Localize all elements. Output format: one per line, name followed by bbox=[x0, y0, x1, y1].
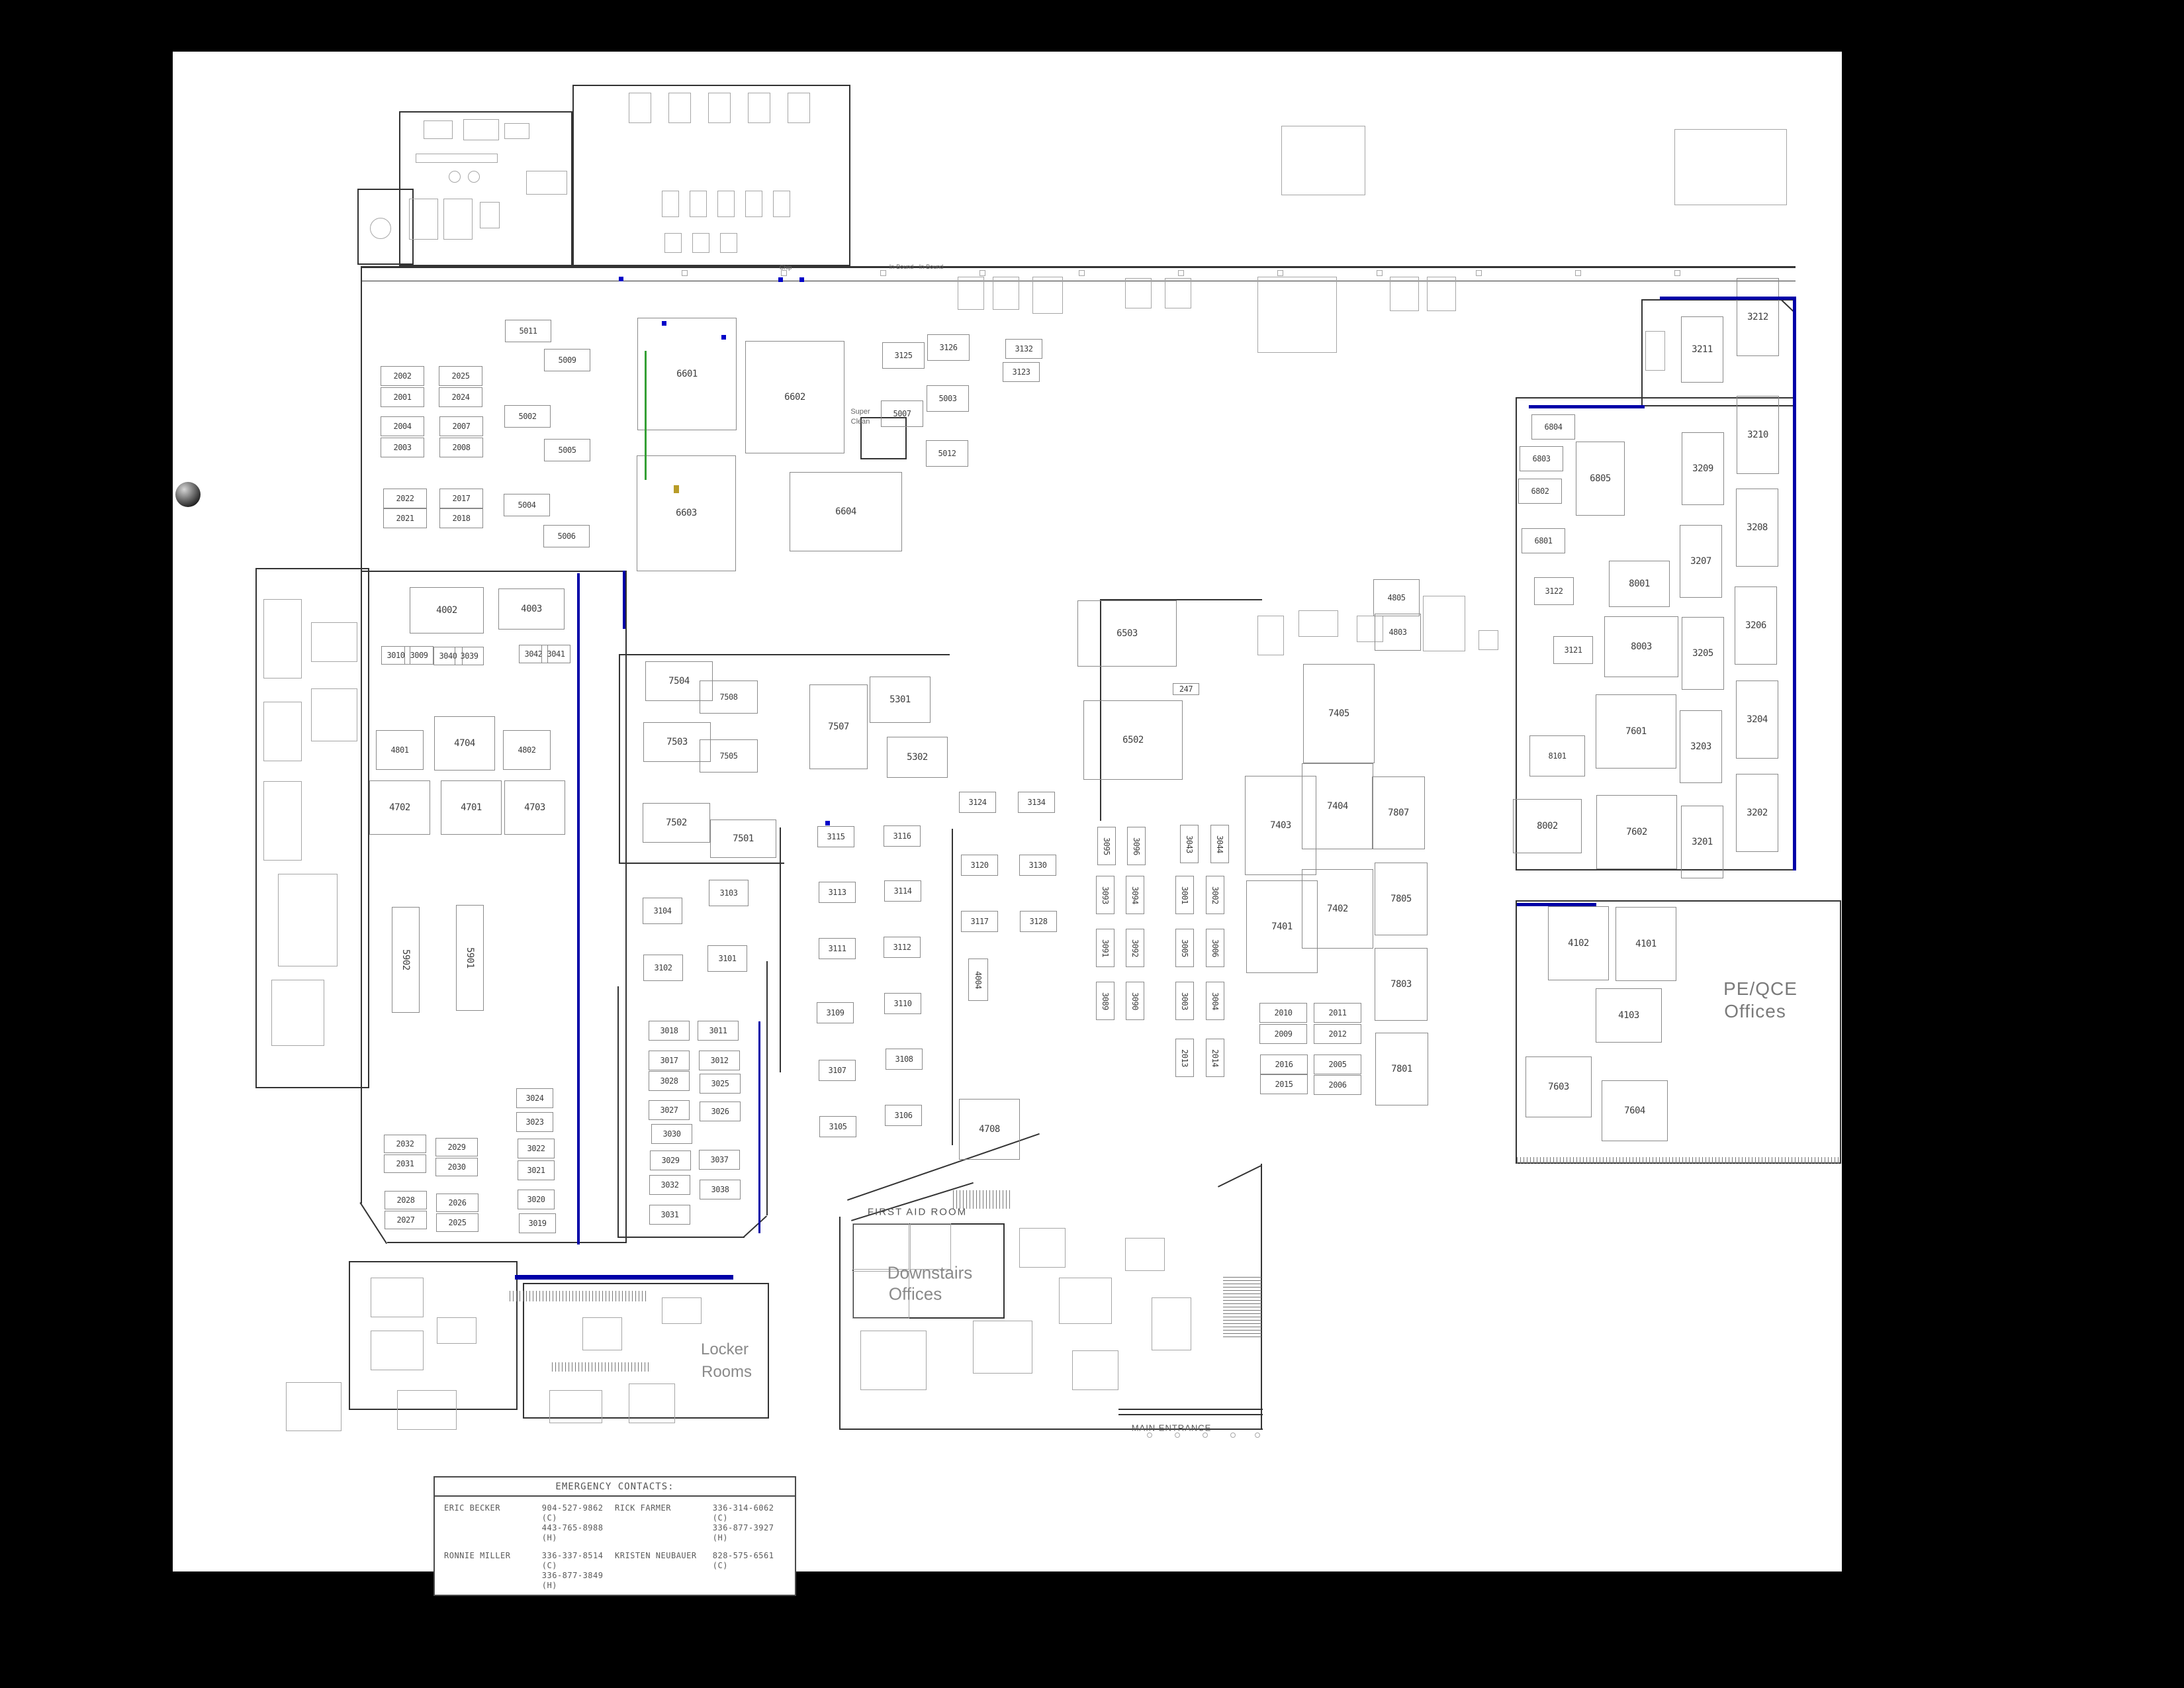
furniture-rect bbox=[443, 199, 473, 240]
room-label-6603: 6603 bbox=[676, 508, 697, 518]
wall-line bbox=[361, 266, 1796, 268]
room-4003: 4003 bbox=[498, 588, 565, 630]
room-5009: 5009 bbox=[544, 349, 590, 371]
room-label-3113: 3113 bbox=[829, 888, 846, 897]
contact-entry: ERIC BECKER904-527-9862 (C)443-765-8988 … bbox=[444, 1503, 615, 1543]
area-label: MAIN ENTRANCE bbox=[1132, 1423, 1212, 1433]
stairs-hatch bbox=[510, 1291, 649, 1301]
wall-line bbox=[361, 571, 627, 572]
blue-accent-line bbox=[1793, 297, 1796, 870]
furniture-rect bbox=[1257, 616, 1284, 655]
room-3009: 3009 bbox=[404, 646, 433, 665]
furniture-rect bbox=[1281, 126, 1365, 195]
room-3107: 3107 bbox=[819, 1060, 856, 1081]
room-4801: 4801 bbox=[376, 730, 424, 770]
room-3106: 3106 bbox=[885, 1105, 922, 1126]
room-label-3116: 3116 bbox=[893, 831, 911, 841]
furniture-circle bbox=[370, 218, 391, 239]
room-4002: 4002 bbox=[410, 587, 484, 633]
room-label-3009: 3009 bbox=[410, 651, 428, 660]
room-label-7603: 7603 bbox=[1548, 1082, 1569, 1092]
room-2006: 2006 bbox=[1314, 1075, 1361, 1095]
room-label-4004: 4004 bbox=[974, 971, 983, 989]
furniture-rect bbox=[549, 1390, 602, 1423]
room-3090: 3090 bbox=[1126, 982, 1144, 1020]
room-5005: 5005 bbox=[544, 439, 590, 461]
room-3031: 3031 bbox=[649, 1205, 690, 1225]
room-7807: 7807 bbox=[1372, 776, 1425, 849]
room-3210: 3210 bbox=[1737, 396, 1779, 474]
room-3017: 3017 bbox=[649, 1051, 690, 1070]
blue-dot bbox=[778, 277, 783, 282]
contact-name: RICK FARMER bbox=[615, 1503, 704, 1543]
room-label-2001: 2001 bbox=[394, 393, 412, 402]
room-5901: 5901 bbox=[456, 905, 484, 1011]
floorplan-screenshot: 2002200120042003202220212025202420072008… bbox=[0, 0, 2184, 1688]
yellow-accent bbox=[674, 485, 679, 493]
room-3021: 3021 bbox=[518, 1160, 555, 1180]
room-2014: 2014 bbox=[1206, 1039, 1224, 1077]
stairs-hatch bbox=[1517, 1157, 1840, 1164]
room-4704: 4704 bbox=[434, 716, 495, 771]
room-label-6803: 6803 bbox=[1533, 454, 1551, 463]
room-label-3001: 3001 bbox=[1180, 886, 1189, 904]
room-7501: 7501 bbox=[710, 820, 776, 858]
room-7801: 7801 bbox=[1375, 1033, 1428, 1105]
room-label-3092: 3092 bbox=[1130, 939, 1140, 957]
room-label-4708: 4708 bbox=[979, 1124, 1000, 1135]
room-label-3111: 3111 bbox=[829, 944, 846, 953]
room-6503: 6503 bbox=[1077, 600, 1177, 667]
room-3038: 3038 bbox=[700, 1180, 741, 1199]
room-label-2002: 2002 bbox=[394, 371, 412, 381]
room-label-4702: 4702 bbox=[389, 802, 410, 813]
room-label-7403: 7403 bbox=[1270, 820, 1291, 831]
room-2029: 2029 bbox=[435, 1138, 478, 1156]
furniture-rect bbox=[662, 1297, 702, 1324]
room-label-7502: 7502 bbox=[666, 818, 687, 828]
room-label-7402: 7402 bbox=[1327, 904, 1348, 914]
room-label-3011: 3011 bbox=[709, 1026, 727, 1035]
room-2008: 2008 bbox=[439, 438, 483, 457]
furniture-rect bbox=[690, 191, 707, 217]
room-label-3002: 3002 bbox=[1210, 886, 1220, 904]
wall-line bbox=[952, 829, 953, 1145]
room-label-2011: 2011 bbox=[1329, 1008, 1347, 1017]
room-label-7405: 7405 bbox=[1328, 708, 1349, 719]
blue-accent-line bbox=[577, 573, 580, 1244]
room-label-3091: 3091 bbox=[1101, 939, 1110, 957]
area-label: Offices bbox=[889, 1284, 942, 1305]
room-label-2010: 2010 bbox=[1275, 1008, 1293, 1017]
room-label-3038: 3038 bbox=[711, 1185, 729, 1194]
room-3134: 3134 bbox=[1018, 792, 1055, 813]
room-3001: 3001 bbox=[1175, 876, 1194, 914]
furniture-rect bbox=[311, 688, 357, 741]
room-2012: 2012 bbox=[1314, 1024, 1361, 1044]
room-3117: 3117 bbox=[961, 911, 998, 932]
room-label-2024: 2024 bbox=[452, 393, 470, 402]
room-5004: 5004 bbox=[504, 494, 550, 516]
furniture-rect bbox=[1427, 277, 1456, 311]
room-6801: 6801 bbox=[1522, 528, 1565, 553]
room-8002: 8002 bbox=[1513, 799, 1582, 853]
blue-dot bbox=[619, 277, 623, 281]
contact-phones: 904-527-9862 (C)443-765-8988 (H) bbox=[542, 1503, 615, 1543]
stairs-hatch bbox=[1223, 1276, 1261, 1337]
room-3120: 3120 bbox=[961, 855, 998, 876]
room-label-3211: 3211 bbox=[1692, 344, 1713, 355]
contact-name: RONNIE MILLER bbox=[444, 1551, 533, 1591]
blue-accent-line bbox=[758, 1021, 760, 1233]
room-3012: 3012 bbox=[699, 1051, 740, 1070]
room-5012: 5012 bbox=[926, 440, 968, 467]
furniture-rect bbox=[1165, 278, 1191, 308]
room-5003: 5003 bbox=[927, 385, 969, 412]
room-4701: 4701 bbox=[441, 780, 502, 835]
room-label-3006: 3006 bbox=[1210, 939, 1220, 957]
room-label-4103: 4103 bbox=[1618, 1010, 1639, 1021]
room-label-5004: 5004 bbox=[518, 500, 536, 510]
room-label-2009: 2009 bbox=[1275, 1029, 1293, 1039]
room-2011: 2011 bbox=[1314, 1003, 1361, 1023]
wall-line bbox=[1118, 1409, 1263, 1410]
blue-accent-line bbox=[515, 1275, 733, 1280]
room-label-6601: 6601 bbox=[676, 369, 698, 379]
room-label-6801: 6801 bbox=[1535, 536, 1553, 545]
room-label-2013: 2013 bbox=[1180, 1049, 1189, 1067]
room-label-2005: 2005 bbox=[1329, 1060, 1347, 1069]
room-label-5301: 5301 bbox=[889, 694, 911, 705]
green-accent-line bbox=[645, 351, 647, 480]
room-label-7508: 7508 bbox=[720, 692, 738, 702]
furniture-rect bbox=[773, 191, 790, 217]
room-label-3025: 3025 bbox=[711, 1079, 729, 1088]
contact-phones: 828-575-6561 (C) bbox=[713, 1551, 786, 1591]
room-label-2018: 2018 bbox=[453, 514, 471, 523]
blue-dot bbox=[825, 821, 830, 825]
room-label-3114: 3114 bbox=[894, 886, 912, 896]
room-label-3202: 3202 bbox=[1747, 808, 1768, 818]
room-label-2004: 2004 bbox=[394, 422, 412, 431]
furniture-rect bbox=[1377, 270, 1383, 276]
room-label-3018: 3018 bbox=[660, 1026, 678, 1035]
room-3125: 3125 bbox=[882, 342, 925, 369]
room-5002: 5002 bbox=[504, 405, 551, 428]
room-label-7602: 7602 bbox=[1626, 827, 1647, 837]
furniture-rect bbox=[958, 277, 984, 310]
area-label: Super bbox=[850, 408, 870, 416]
room-4803: 4803 bbox=[1375, 614, 1421, 651]
area-label: Offices bbox=[1724, 1001, 1786, 1022]
furniture-rect bbox=[263, 781, 302, 861]
blue-dot bbox=[721, 335, 726, 340]
room-label-5011: 5011 bbox=[520, 326, 537, 336]
contacts-title: EMERGENCY CONTACTS: bbox=[435, 1477, 795, 1497]
furniture-rect bbox=[1423, 596, 1465, 651]
furniture-rect bbox=[397, 1390, 457, 1430]
contact-entry: RONNIE MILLER336-337-8514 (C)336-877-384… bbox=[444, 1551, 615, 1591]
room-3032: 3032 bbox=[649, 1175, 690, 1195]
room-4702: 4702 bbox=[369, 780, 430, 835]
room-2001: 2001 bbox=[381, 387, 424, 407]
room-7805: 7805 bbox=[1375, 863, 1428, 935]
room-2018: 2018 bbox=[439, 508, 483, 528]
furniture-rect bbox=[424, 120, 453, 139]
room-label-3096: 3096 bbox=[1132, 837, 1141, 855]
furniture-rect bbox=[409, 199, 438, 240]
room-5011: 5011 bbox=[505, 320, 551, 342]
furniture-rect bbox=[1575, 270, 1581, 276]
blue-dot bbox=[799, 277, 804, 282]
room-7507: 7507 bbox=[809, 684, 868, 769]
contact-phones: 336-314-6062 (C)336-877-3927 (H) bbox=[713, 1503, 786, 1543]
furniture-rect bbox=[1079, 270, 1085, 276]
room-label-2028: 2028 bbox=[397, 1196, 415, 1205]
room-7502: 7502 bbox=[643, 803, 710, 843]
furniture-rect bbox=[662, 191, 679, 217]
room-label-5007: 5007 bbox=[893, 409, 911, 418]
room-6603: 6603 bbox=[637, 455, 736, 571]
room-3029: 3029 bbox=[650, 1150, 691, 1170]
room-3023: 3023 bbox=[516, 1112, 553, 1132]
room-3209: 3209 bbox=[1682, 432, 1724, 505]
room-label-6802: 6802 bbox=[1531, 487, 1549, 496]
room-5007: 5007 bbox=[881, 400, 923, 427]
area-label: In-Bound bbox=[889, 263, 914, 270]
room-7604: 7604 bbox=[1602, 1080, 1668, 1141]
furniture-rect bbox=[1645, 331, 1665, 371]
room-label-247: 247 bbox=[1179, 684, 1193, 694]
room-3104: 3104 bbox=[643, 898, 682, 924]
room-label-2029: 2029 bbox=[448, 1143, 466, 1152]
wall-line bbox=[361, 267, 362, 571]
room-3105: 3105 bbox=[819, 1116, 856, 1137]
room-label-5012: 5012 bbox=[938, 449, 956, 458]
room-label-2031: 2031 bbox=[396, 1159, 414, 1168]
furniture-rect bbox=[1298, 610, 1338, 637]
room-label-3103: 3103 bbox=[720, 888, 738, 898]
room-3026: 3026 bbox=[700, 1102, 741, 1121]
room-label-3115: 3115 bbox=[827, 832, 845, 841]
room-2030: 2030 bbox=[435, 1158, 478, 1176]
room-label-7504: 7504 bbox=[668, 676, 690, 686]
room-label-7803: 7803 bbox=[1390, 979, 1412, 990]
room-label-4703: 4703 bbox=[524, 802, 545, 813]
room-3089: 3089 bbox=[1096, 982, 1115, 1020]
room-label-2015: 2015 bbox=[1275, 1080, 1293, 1089]
furniture-rect bbox=[371, 1278, 424, 1317]
room-3110: 3110 bbox=[884, 993, 921, 1014]
room-3094: 3094 bbox=[1126, 876, 1144, 914]
furniture-rect bbox=[629, 1383, 675, 1423]
room-label-2027: 2027 bbox=[397, 1215, 415, 1225]
room-label-3102: 3102 bbox=[655, 963, 672, 972]
room-label-3120: 3120 bbox=[971, 861, 989, 870]
room-label-4003: 4003 bbox=[521, 604, 542, 614]
furniture-rect bbox=[682, 270, 688, 276]
room-3002: 3002 bbox=[1206, 876, 1224, 914]
room-label-3004: 3004 bbox=[1210, 992, 1220, 1010]
room-3020: 3020 bbox=[518, 1190, 555, 1209]
room-label-3029: 3029 bbox=[662, 1156, 680, 1165]
wall-line bbox=[780, 827, 781, 1072]
room-3044: 3044 bbox=[1210, 825, 1229, 863]
room-3126: 3126 bbox=[927, 334, 970, 361]
wall-line bbox=[387, 1242, 627, 1243]
room-3027: 3027 bbox=[649, 1100, 690, 1120]
room-label-3042: 3042 bbox=[525, 649, 543, 659]
room-3006: 3006 bbox=[1206, 929, 1224, 967]
furniture-circle bbox=[1230, 1432, 1236, 1438]
wall-line bbox=[619, 654, 620, 863]
room-3004: 3004 bbox=[1206, 982, 1224, 1020]
wall-line bbox=[619, 654, 950, 655]
room-label-3012: 3012 bbox=[711, 1056, 729, 1065]
furniture-rect bbox=[286, 1382, 341, 1431]
furniture-rect bbox=[263, 599, 302, 679]
furniture-rect bbox=[1152, 1297, 1191, 1350]
room-label-3094: 3094 bbox=[1130, 886, 1140, 904]
room-label-3032: 3032 bbox=[661, 1180, 679, 1190]
room-label-3212: 3212 bbox=[1747, 312, 1768, 322]
wall-line bbox=[766, 961, 768, 1215]
room-2002: 2002 bbox=[381, 366, 424, 386]
room-label-7401: 7401 bbox=[1271, 921, 1293, 932]
room-2022: 2022 bbox=[383, 489, 427, 508]
room-label-3123: 3123 bbox=[1013, 367, 1030, 377]
room-3019: 3019 bbox=[519, 1213, 556, 1233]
sphere-marker bbox=[175, 482, 201, 507]
room-label-3101: 3101 bbox=[719, 954, 737, 963]
room-label-3209: 3209 bbox=[1692, 463, 1713, 474]
room-label-2025: 2025 bbox=[452, 371, 470, 381]
room-label-7505: 7505 bbox=[720, 751, 738, 761]
room-3092: 3092 bbox=[1126, 929, 1144, 967]
room-label-2021: 2021 bbox=[396, 514, 414, 523]
contact-entry: KRISTEN NEUBAUER828-575-6561 (C) bbox=[615, 1551, 786, 1591]
room-label-3019: 3019 bbox=[529, 1219, 547, 1228]
furniture-rect bbox=[526, 171, 567, 195]
room-label-3003: 3003 bbox=[1180, 992, 1189, 1010]
area-label: Locker bbox=[701, 1340, 749, 1359]
room-label-4102: 4102 bbox=[1568, 938, 1589, 949]
furniture-rect bbox=[1257, 277, 1337, 353]
room-label-3112: 3112 bbox=[893, 943, 911, 952]
room-7508: 7508 bbox=[700, 680, 758, 714]
area-label: Clean bbox=[851, 418, 870, 426]
room-label-5902: 5902 bbox=[400, 949, 411, 970]
room-6602: 6602 bbox=[745, 341, 844, 453]
room-2025: 2025 bbox=[439, 366, 482, 386]
area-label: In-Bound bbox=[919, 263, 944, 270]
furniture-rect bbox=[788, 93, 810, 123]
room-label-2003: 2003 bbox=[394, 443, 412, 452]
furniture-rect bbox=[880, 270, 886, 276]
area-label: Downstairs bbox=[887, 1263, 973, 1284]
room-label-6604: 6604 bbox=[835, 506, 856, 517]
room-4103: 4103 bbox=[1596, 988, 1662, 1043]
furniture-rect bbox=[311, 622, 357, 662]
room-3028: 3028 bbox=[649, 1071, 690, 1091]
room-label-3039: 3039 bbox=[461, 651, 478, 661]
room-6502: 6502 bbox=[1083, 700, 1183, 780]
furniture-rect bbox=[371, 1331, 424, 1370]
room-label-7507: 7507 bbox=[828, 722, 849, 732]
room-7505: 7505 bbox=[700, 739, 758, 773]
room-label-3026: 3026 bbox=[711, 1107, 729, 1116]
room-4101: 4101 bbox=[1615, 907, 1676, 981]
room-label-3037: 3037 bbox=[711, 1155, 729, 1164]
room-label-7604: 7604 bbox=[1624, 1105, 1645, 1116]
room-label-5003: 5003 bbox=[939, 394, 957, 403]
room-3096: 3096 bbox=[1127, 827, 1146, 865]
furniture-rect bbox=[748, 93, 770, 123]
furniture-rect bbox=[582, 1317, 622, 1350]
room-3011: 3011 bbox=[698, 1021, 739, 1041]
furniture-rect bbox=[1178, 270, 1184, 276]
room-5302: 5302 bbox=[887, 737, 948, 778]
room-3111: 3111 bbox=[819, 938, 856, 959]
room-3128: 3128 bbox=[1020, 911, 1057, 932]
room-label-3044: 3044 bbox=[1215, 835, 1224, 853]
room-label-3208: 3208 bbox=[1747, 522, 1768, 533]
room-label-4101: 4101 bbox=[1635, 939, 1657, 949]
room-3095: 3095 bbox=[1097, 827, 1116, 865]
room-label-3030: 3030 bbox=[663, 1129, 681, 1139]
room-7405: 7405 bbox=[1303, 664, 1375, 763]
room-label-7807: 7807 bbox=[1388, 808, 1409, 818]
room-label-7404: 7404 bbox=[1327, 801, 1348, 812]
room-label-3093: 3093 bbox=[1101, 886, 1110, 904]
room-label-7805: 7805 bbox=[1390, 894, 1412, 904]
room-label-5009: 5009 bbox=[559, 355, 576, 365]
room-label-3020: 3020 bbox=[527, 1195, 545, 1204]
room-6803: 6803 bbox=[1520, 446, 1563, 471]
room-label-2032: 2032 bbox=[396, 1139, 414, 1149]
room-label-3005: 3005 bbox=[1180, 939, 1189, 957]
furniture-rect bbox=[717, 191, 735, 217]
blue-accent-line bbox=[623, 571, 625, 629]
furniture-rect bbox=[720, 233, 737, 253]
room-label-2022: 2022 bbox=[396, 494, 414, 503]
room-label-3106: 3106 bbox=[895, 1111, 913, 1120]
room-8101: 8101 bbox=[1529, 735, 1585, 776]
room-label-3201: 3201 bbox=[1692, 837, 1713, 847]
furniture-circle bbox=[1203, 1432, 1208, 1438]
furniture-rect bbox=[480, 202, 500, 228]
room-6804: 6804 bbox=[1531, 414, 1575, 440]
room-3132: 3132 bbox=[1005, 339, 1042, 359]
room-2003: 2003 bbox=[381, 438, 424, 457]
room-label-4801: 4801 bbox=[391, 745, 409, 755]
room-label-4803: 4803 bbox=[1389, 628, 1407, 637]
room-3043: 3043 bbox=[1180, 825, 1199, 863]
room-3206: 3206 bbox=[1735, 586, 1777, 665]
furniture-circle bbox=[449, 171, 461, 183]
furniture-rect bbox=[979, 270, 985, 276]
room-label-2007: 2007 bbox=[453, 422, 471, 431]
room-label-4805: 4805 bbox=[1388, 593, 1406, 602]
furniture-rect bbox=[1032, 277, 1063, 314]
room-label-3121: 3121 bbox=[1565, 645, 1582, 655]
furniture-rect bbox=[1479, 630, 1498, 650]
room-label-2016: 2016 bbox=[1275, 1060, 1293, 1069]
room-label-6805: 6805 bbox=[1590, 473, 1611, 484]
furniture-rect bbox=[708, 93, 731, 123]
room-label-5006: 5006 bbox=[558, 532, 576, 541]
furniture-rect bbox=[504, 123, 529, 139]
